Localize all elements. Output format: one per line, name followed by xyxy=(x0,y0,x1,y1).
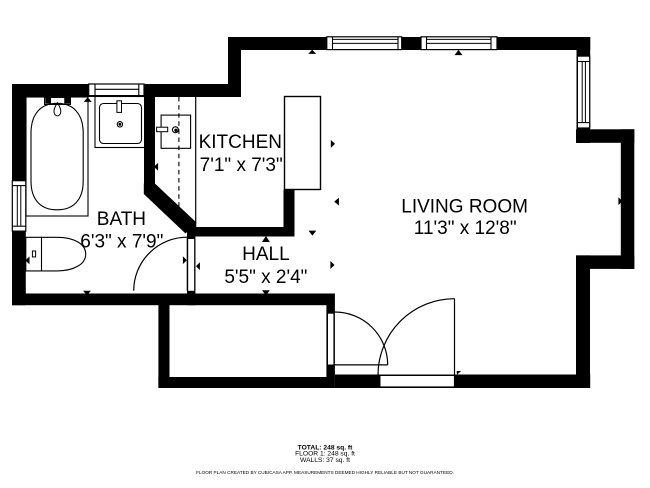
svg-text:BATH: BATH xyxy=(97,209,146,230)
svg-text:FLOOR PLAN CREATED BY CUBICASA: FLOOR PLAN CREATED BY CUBICASA APP. MEAS… xyxy=(196,470,454,475)
svg-text:LIVING ROOM: LIVING ROOM xyxy=(401,197,528,218)
svg-text:5'5" x 2'4": 5'5" x 2'4" xyxy=(224,267,307,288)
svg-text:WALLS: 37 sq. ft: WALLS: 37 sq. ft xyxy=(300,457,350,464)
svg-text:KITCHEN: KITCHEN xyxy=(199,132,282,153)
svg-text:HALL: HALL xyxy=(242,244,290,265)
svg-text:6'3" x 7'9": 6'3" x 7'9" xyxy=(80,232,163,253)
svg-text:11'3" x 12'8": 11'3" x 12'8" xyxy=(414,218,517,239)
svg-text:7'1" x 7'3": 7'1" x 7'3" xyxy=(200,155,283,176)
